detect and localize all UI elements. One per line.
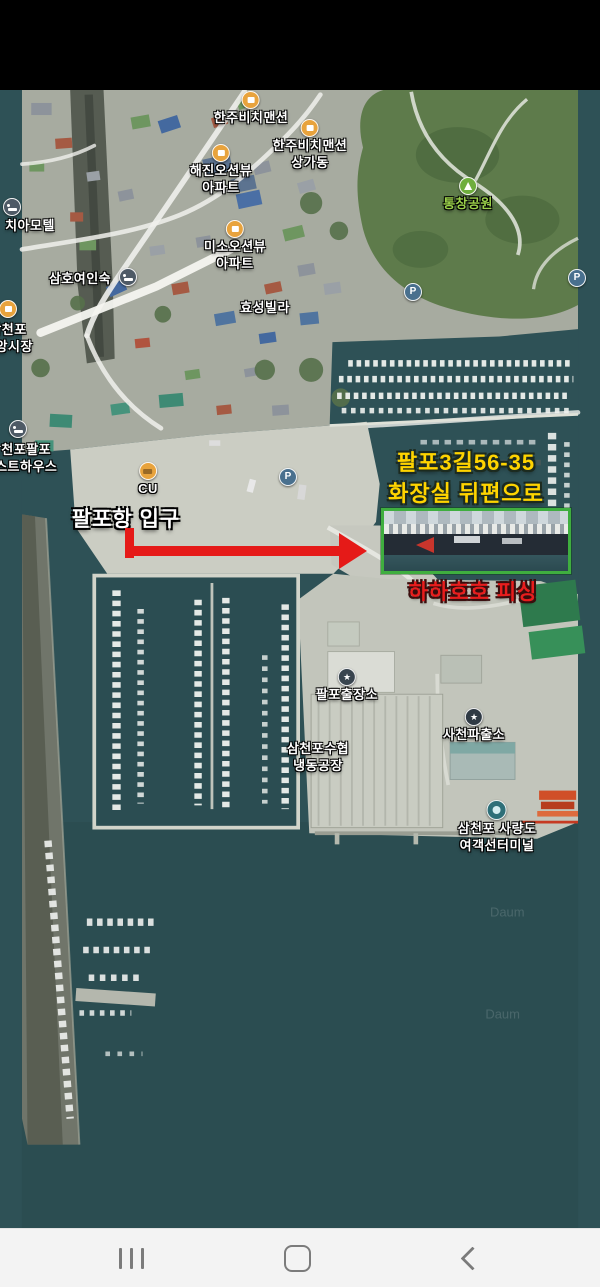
boat-photo-highlight <box>381 508 571 574</box>
home-icon <box>284 1245 311 1272</box>
recents-button[interactable] <box>96 1229 166 1287</box>
recents-icon <box>141 1248 144 1269</box>
back-button[interactable] <box>434 1229 504 1287</box>
status-bar <box>0 0 600 90</box>
map-watermark: Daum <box>485 1007 520 1022</box>
shop-name-annotation: 하하호호 피싱 <box>409 576 538 606</box>
photo-boat-cabin <box>502 538 522 544</box>
back-icon <box>460 1246 484 1270</box>
recents-icon <box>130 1248 133 1269</box>
android-nav-bar <box>0 1228 600 1287</box>
satellite-map[interactable]: Daum Daum <box>0 90 600 1228</box>
home-button[interactable] <box>262 1229 332 1287</box>
photo-sky <box>384 511 568 524</box>
map-watermark: Daum <box>490 905 525 920</box>
photo-city-skyline <box>384 524 568 534</box>
address-annotation: 팔포3길56-35 화장실 뒤편으로 <box>388 447 544 509</box>
arrow-shaft <box>125 546 341 556</box>
map-canvas: Daum Daum <box>0 90 600 1228</box>
address-line-1: 팔포3길56-35 <box>388 447 544 478</box>
photo-water <box>384 555 568 571</box>
phone-screenshot: { "map": { "pois": [ {"id":"hanju-beach-… <box>0 0 600 1286</box>
arrow-head-icon <box>339 533 367 569</box>
photo-boat-bow <box>416 537 434 553</box>
photo-boat-cabin <box>454 536 480 543</box>
address-line-2: 화장실 뒤편으로 <box>388 478 544 509</box>
recents-icon <box>119 1248 122 1269</box>
